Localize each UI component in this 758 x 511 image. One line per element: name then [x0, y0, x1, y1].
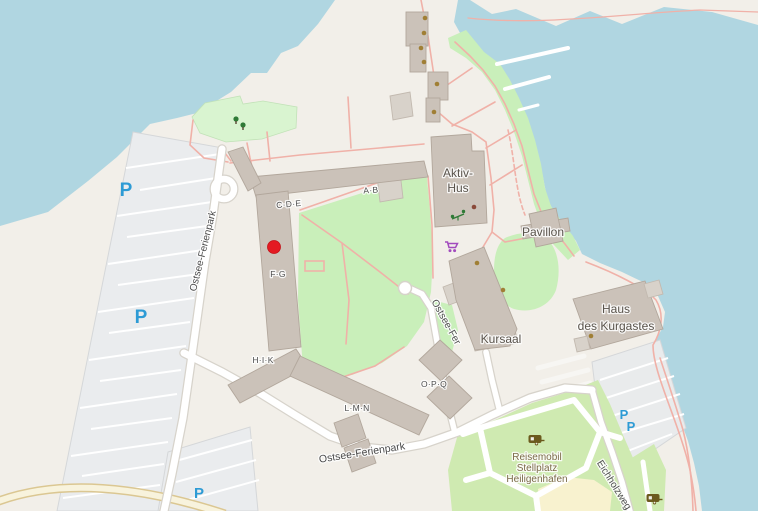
- poi-dot: [475, 261, 480, 266]
- poi-dot: [472, 205, 477, 210]
- parking-symbol: P: [120, 180, 133, 201]
- poi-dot: [422, 60, 427, 65]
- building-label-haus-1: Haus: [602, 302, 630, 316]
- poi-dot: [419, 46, 424, 51]
- red-marker[interactable]: [268, 241, 281, 254]
- building-label-aktiv-hus-2: Hus: [447, 181, 468, 195]
- dead-end-circle: [399, 282, 412, 295]
- unit-label-lmn: L·M·N: [344, 403, 369, 413]
- poi-dot: [423, 16, 428, 21]
- poi-dot: [432, 110, 437, 115]
- building-north-3: [390, 92, 413, 120]
- campsite-label-3: Heiligenhafen: [506, 474, 567, 485]
- campsite-label-1: Reisemobil: [512, 452, 561, 463]
- poi-dot: [422, 31, 427, 36]
- building-haus-annex-sw: [574, 336, 590, 352]
- parking-symbol: P: [194, 485, 204, 502]
- parking-symbol: P: [135, 307, 148, 328]
- campsite-label-2: Stellplatz: [517, 463, 558, 474]
- parking-symbol: P: [627, 419, 636, 434]
- building-label-haus-2: des Kurgastes: [578, 319, 655, 333]
- poi-dot: [435, 82, 440, 87]
- building-label-aktiv-hus-1: Aktiv-: [443, 166, 473, 180]
- poi-dot: [501, 288, 506, 293]
- map-canvas[interactable]: Ostsee-Ferienpark Ostsee-Ferienpark Osts…: [0, 0, 758, 511]
- unit-label-ab: A·B: [363, 184, 379, 195]
- poi-dot: [589, 334, 594, 339]
- unit-label-fg: F·G: [270, 269, 286, 279]
- building-label-pavillon: Pavillon: [522, 225, 564, 239]
- building-north-1b: [410, 44, 426, 72]
- building-label-kursaal: Kursaal: [481, 332, 522, 346]
- unit-label-opq: O·P·Q: [421, 379, 447, 389]
- unit-label-hik: H·I·K: [252, 355, 273, 365]
